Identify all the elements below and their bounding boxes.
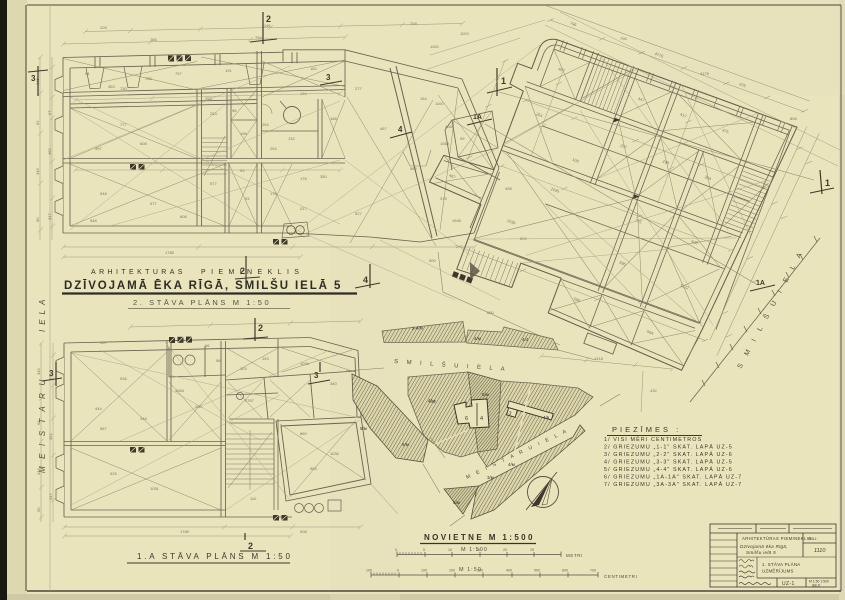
- svg-text:277: 277: [355, 86, 362, 91]
- svg-text:4: 4: [398, 125, 403, 134]
- svg-text:756: 756: [150, 37, 157, 42]
- svg-text:363: 363: [108, 84, 115, 89]
- svg-text:346: 346: [36, 468, 41, 475]
- svg-text:6: 6: [465, 416, 468, 422]
- svg-text:548: 548: [90, 218, 97, 223]
- svg-text:PIEMINEKLIS: PIEMINEKLIS: [201, 269, 304, 276]
- svg-text:68.X: 68.X: [812, 583, 821, 588]
- svg-text:4/м: 4/м: [474, 336, 481, 341]
- svg-text:2: 2: [240, 266, 245, 276]
- svg-text:110: 110: [250, 496, 257, 501]
- svg-text:100: 100: [366, 569, 372, 573]
- svg-text:3: 3: [49, 369, 54, 378]
- svg-text:350: 350: [320, 174, 327, 179]
- svg-text:NOVIETNE M 1:500: NOVIETNE M 1:500: [424, 533, 535, 542]
- svg-text:ARHITEKTURAS: ARHITEKTURAS: [91, 269, 186, 276]
- svg-text:ARHITEKTŪRAS PIEMINEKLIS: ARHITEKTŪRAS PIEMINEKLIS: [742, 536, 811, 541]
- svg-text:400: 400: [506, 569, 512, 573]
- svg-text:62: 62: [36, 420, 41, 425]
- svg-text:93: 93: [240, 168, 245, 173]
- svg-text:160: 160: [310, 66, 317, 71]
- svg-text:UZ-1: UZ-1: [782, 581, 795, 587]
- svg-text:2/ GRIEZUMU „1-1" SKAT.: 2/ GRIEZUMU „1-1" SKAT. LAPĀ UZ-5: [604, 444, 733, 451]
- svg-text:583: 583: [310, 466, 317, 471]
- svg-text:1105: 1105: [430, 44, 439, 49]
- svg-text:93: 93: [245, 196, 250, 201]
- svg-text:452: 452: [48, 433, 53, 440]
- svg-text:597: 597: [95, 146, 102, 151]
- svg-text:3-4/м: 3-4/м: [412, 325, 423, 331]
- svg-text:6/ GRIEZUMU „1A-1A" SKAT.: 6/ GRIEZUMU „1A-1A" SKAT. LAPĀ UZ-7: [604, 474, 742, 481]
- svg-text:347: 347: [47, 213, 52, 220]
- svg-text:97: 97: [47, 110, 52, 115]
- svg-text:567: 567: [100, 426, 107, 431]
- svg-text:198: 198: [240, 131, 247, 136]
- svg-text:IELA: IELA: [38, 295, 47, 332]
- svg-text:253: 253: [210, 111, 217, 116]
- svg-text:176: 176: [300, 176, 307, 181]
- svg-text:4: 4: [480, 416, 483, 422]
- svg-text:254: 254: [262, 122, 269, 127]
- svg-text:500: 500: [429, 258, 436, 263]
- svg-text:90: 90: [35, 217, 40, 222]
- svg-text:1032: 1032: [330, 451, 340, 456]
- svg-text:4/м: 4/м: [428, 399, 436, 405]
- svg-text:860: 860: [300, 431, 307, 436]
- svg-text:PIEZĪMES :: PIEZĪMES :: [612, 425, 681, 434]
- svg-text:1418: 1418: [594, 356, 604, 361]
- svg-text:1A: 1A: [756, 280, 765, 287]
- svg-text:608: 608: [180, 214, 187, 219]
- svg-text:4: 4: [363, 275, 368, 285]
- svg-text:94: 94: [85, 71, 90, 76]
- svg-text:154: 154: [420, 96, 427, 101]
- svg-text:452: 452: [47, 148, 52, 155]
- svg-text:346: 346: [35, 168, 40, 175]
- svg-text:2: 2: [258, 323, 263, 333]
- svg-text:536: 536: [120, 376, 127, 381]
- svg-text:1051: 1051: [150, 486, 160, 491]
- svg-text:176: 176: [270, 191, 277, 196]
- svg-text:96: 96: [205, 343, 210, 348]
- svg-text:1545: 1545: [452, 218, 462, 223]
- svg-text:4084: 4084: [175, 388, 185, 393]
- svg-text:577: 577: [150, 201, 157, 206]
- svg-text:757: 757: [175, 71, 182, 76]
- svg-text:345: 345: [36, 368, 41, 375]
- svg-text:1034: 1034: [300, 361, 310, 366]
- svg-text:200: 200: [449, 569, 455, 573]
- svg-text:548: 548: [100, 191, 107, 196]
- svg-text:DZĪVOJAMĀ ĒKA RĪGĀ, SMILŠU IEL: DZĪVOJAMĀ ĒKA RĪGĀ, SMILŠU IELĀ 5: [64, 279, 342, 292]
- svg-text:1103: 1103: [460, 31, 469, 36]
- svg-text:M 1:500: M 1:500: [461, 547, 488, 553]
- svg-text:1785: 1785: [180, 529, 190, 534]
- svg-text:500: 500: [534, 569, 540, 573]
- svg-text:4175: 4175: [700, 71, 710, 76]
- svg-text:444: 444: [95, 406, 102, 411]
- svg-text:100: 100: [421, 569, 427, 573]
- svg-text:608: 608: [140, 141, 147, 146]
- svg-text:586: 586: [410, 166, 417, 171]
- svg-text:1100: 1100: [435, 101, 444, 106]
- svg-text:908: 908: [300, 529, 307, 534]
- svg-text:3/ GRIEZUMU „2-2" SKAT.: 3/ GRIEZUMU „2-2" SKAT. LAPĀ UZ-6: [604, 451, 733, 458]
- svg-text:62: 62: [35, 120, 40, 125]
- svg-text:1: 1: [501, 76, 506, 86]
- svg-text:Smilšu ielā 5: Smilšu ielā 5: [746, 550, 776, 555]
- svg-text:796: 796: [620, 36, 627, 41]
- svg-text:20: 20: [503, 548, 507, 552]
- svg-text:525: 525: [110, 471, 117, 476]
- svg-text:1: 1: [825, 178, 830, 188]
- svg-text:2. STĀVA PLĀNS M 1:50: 2. STĀVA PLĀNS M 1:50: [133, 298, 271, 307]
- svg-text:4/4: 4/4: [522, 337, 529, 342]
- svg-text:5/ GRIEZUMU „4-4" SKAT.: 5/ GRIEZUMU „4-4" SKAT. LAPĀ UZ-6: [604, 466, 733, 473]
- svg-text:4/в: 4/в: [543, 415, 550, 420]
- svg-text:188: 188: [330, 116, 337, 121]
- svg-text:1785: 1785: [165, 250, 175, 255]
- svg-text:600: 600: [562, 569, 568, 573]
- svg-text:134: 134: [300, 91, 307, 96]
- svg-text:209: 209: [100, 25, 107, 30]
- svg-text:709: 709: [410, 21, 417, 26]
- svg-text:498: 498: [505, 186, 512, 191]
- svg-text:1. STĀVA PLĀNA: 1. STĀVA PLĀNA: [762, 562, 801, 567]
- svg-text:3: 3: [31, 74, 36, 83]
- svg-text:1/ VISI MĒRI CENTIMETROS: 1/ VISI MĒRI CENTIMETROS: [604, 436, 702, 443]
- svg-text:346: 346: [140, 416, 147, 421]
- svg-text:4/ GRIEZUMU „3-3" SKAT.: 4/ GRIEZUMU „3-3" SKAT. LAPĀ UZ-5: [604, 459, 733, 466]
- svg-text:58: 58: [216, 358, 221, 363]
- svg-text:217: 217: [300, 206, 307, 211]
- svg-text:2: 2: [266, 14, 271, 24]
- svg-text:347: 347: [48, 493, 53, 500]
- svg-text:527: 527: [355, 211, 362, 216]
- svg-text:340: 340: [330, 381, 337, 386]
- svg-text:808: 808: [790, 116, 797, 121]
- svg-text:25: 25: [530, 548, 534, 552]
- svg-text:153: 153: [262, 356, 269, 361]
- svg-text:10: 10: [448, 548, 452, 552]
- svg-text:191: 191: [225, 68, 232, 73]
- svg-text:OBJ.: OBJ.: [808, 536, 818, 541]
- svg-text:254: 254: [270, 146, 277, 151]
- svg-text:90: 90: [36, 507, 41, 512]
- svg-text:5/м: 5/м: [360, 426, 367, 431]
- svg-text:700: 700: [590, 569, 596, 573]
- svg-text:5: 5: [423, 548, 425, 552]
- svg-text:1068: 1068: [440, 141, 450, 146]
- svg-text:432: 432: [650, 388, 657, 393]
- svg-text:777: 777: [120, 122, 127, 127]
- svg-text:METRI: METRI: [566, 553, 583, 558]
- svg-text:7/ GRIEZUMU „3A-3A" SKAT.: 7/ GRIEZUMU „3A-3A" SKAT. LAPĀ UZ-7: [604, 481, 742, 488]
- svg-text:CENTIMETRI: CENTIMETRI: [604, 574, 638, 579]
- svg-text:3: 3: [314, 371, 319, 380]
- svg-text:730: 730: [120, 86, 127, 91]
- svg-text:1110: 1110: [814, 548, 826, 554]
- svg-text:577: 577: [210, 181, 217, 186]
- svg-text:6/м: 6/м: [402, 442, 409, 447]
- svg-text:2: 2: [248, 541, 253, 551]
- svg-text:103: 103: [240, 366, 247, 371]
- svg-text:0: 0: [397, 569, 399, 573]
- svg-text:300: 300: [477, 569, 483, 573]
- svg-text:132: 132: [288, 136, 295, 141]
- svg-text:15: 15: [476, 548, 480, 552]
- svg-text:467: 467: [380, 126, 387, 131]
- svg-text:2787: 2787: [245, 398, 255, 403]
- svg-text:457: 457: [100, 340, 107, 345]
- svg-text:5/м: 5/м: [482, 392, 489, 397]
- svg-text:99: 99: [460, 136, 465, 141]
- svg-text:250: 250: [195, 404, 202, 409]
- svg-text:590: 590: [520, 236, 527, 241]
- svg-text:96: 96: [232, 108, 237, 113]
- svg-text:4/м: 4/м: [508, 462, 515, 467]
- svg-text:756: 756: [145, 76, 152, 81]
- svg-text:375: 375: [440, 196, 447, 201]
- svg-text:UZMĒRĪJUMS: UZMĒRĪJUMS: [762, 569, 794, 574]
- svg-text:Dzīvojamā ēka Rīgā,: Dzīvojamā ēka Rīgā,: [740, 544, 788, 549]
- svg-text:0: 0: [395, 548, 397, 552]
- svg-text:1.A STĀVA PLĀNS M 1:50: 1.A STĀVA PLĀNS M 1:50: [137, 552, 293, 561]
- svg-text:5/м: 5/м: [453, 500, 460, 505]
- svg-text:794: 794: [255, 35, 262, 40]
- svg-text:3: 3: [326, 73, 331, 82]
